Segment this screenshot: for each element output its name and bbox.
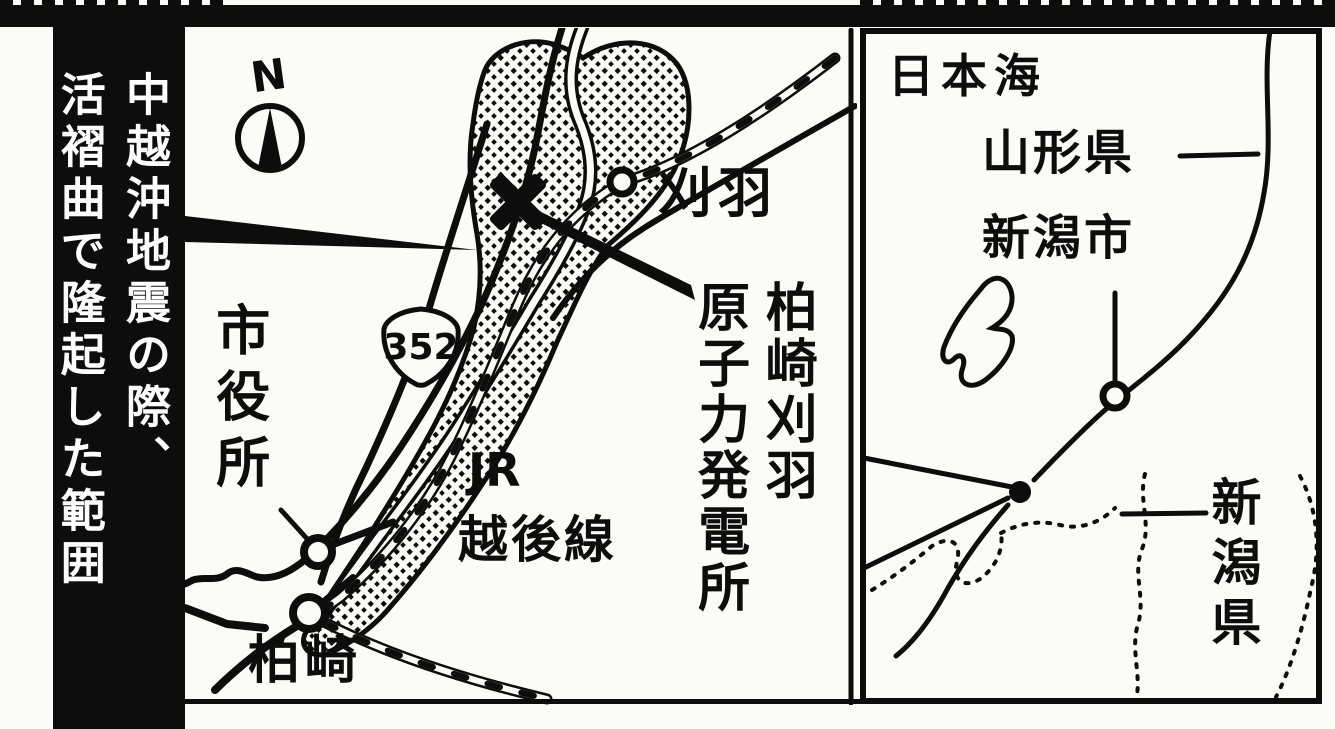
niigata-city-marker [1103, 384, 1127, 408]
caption-line-1: 中越沖地震の際、 [112, 71, 177, 591]
caption-leader-wedge [185, 216, 477, 250]
caption-line-2: 活褶曲で隆起した範囲 [47, 71, 112, 591]
scan-noise-top-left [0, 0, 230, 10]
pref-boundary-central [1135, 474, 1146, 699]
kashiwazaki-label: 柏崎 [248, 634, 362, 689]
kashiwazaki-dot [1009, 481, 1031, 503]
yamagata-pref-label: 山形県 [982, 128, 1135, 178]
caption-banner: 中越沖地震の際、 活褶曲で隆起した範囲 [53, 27, 185, 729]
kariwa-marker [610, 170, 634, 194]
kariwa-label: 刈羽 [658, 166, 778, 223]
niigata-pref-label: 新潟県 [1206, 476, 1259, 656]
pref-boundary-east [1276, 476, 1317, 697]
route-number: 352 [383, 327, 458, 368]
pref-boundary-west [872, 533, 1002, 590]
jr-label: JR [468, 446, 521, 494]
plant-label: 柏崎刈羽 原子力発電所 [684, 280, 819, 616]
compass-north-label: N [248, 49, 290, 102]
echigo-line-label: 越後線 [458, 514, 617, 567]
yamagata-leader-dash [1180, 154, 1258, 156]
sado-island [943, 278, 1013, 385]
plant-label-line-2: 原子力発電所 [684, 280, 752, 616]
niigata-city-label: 新潟市 [982, 213, 1135, 263]
scan-noise-top-right [860, 0, 1335, 14]
niigata-pref-leader-dash [1122, 513, 1206, 514]
city-hall-label: 市役所 [209, 302, 266, 500]
pref-boundary-link [1001, 508, 1115, 533]
shoreline-southwest [185, 608, 265, 628]
newspaper-map-figure: 中越沖地震の際、 活褶曲で隆起した範囲 [0, 0, 1335, 729]
sea-of-japan-label: 日本海 [888, 52, 1047, 100]
city-hall-leader [281, 510, 309, 541]
zoom-indicator-top [864, 458, 1012, 487]
plant-label-line-1: 柏崎刈羽 [752, 280, 820, 616]
kashiwazaki-station-marker [293, 597, 325, 629]
bottom-border-line [185, 699, 1320, 704]
compass-icon: N [238, 49, 302, 170]
caption-text: 中越沖地震の際、 活褶曲で隆起した範囲 [47, 71, 178, 591]
